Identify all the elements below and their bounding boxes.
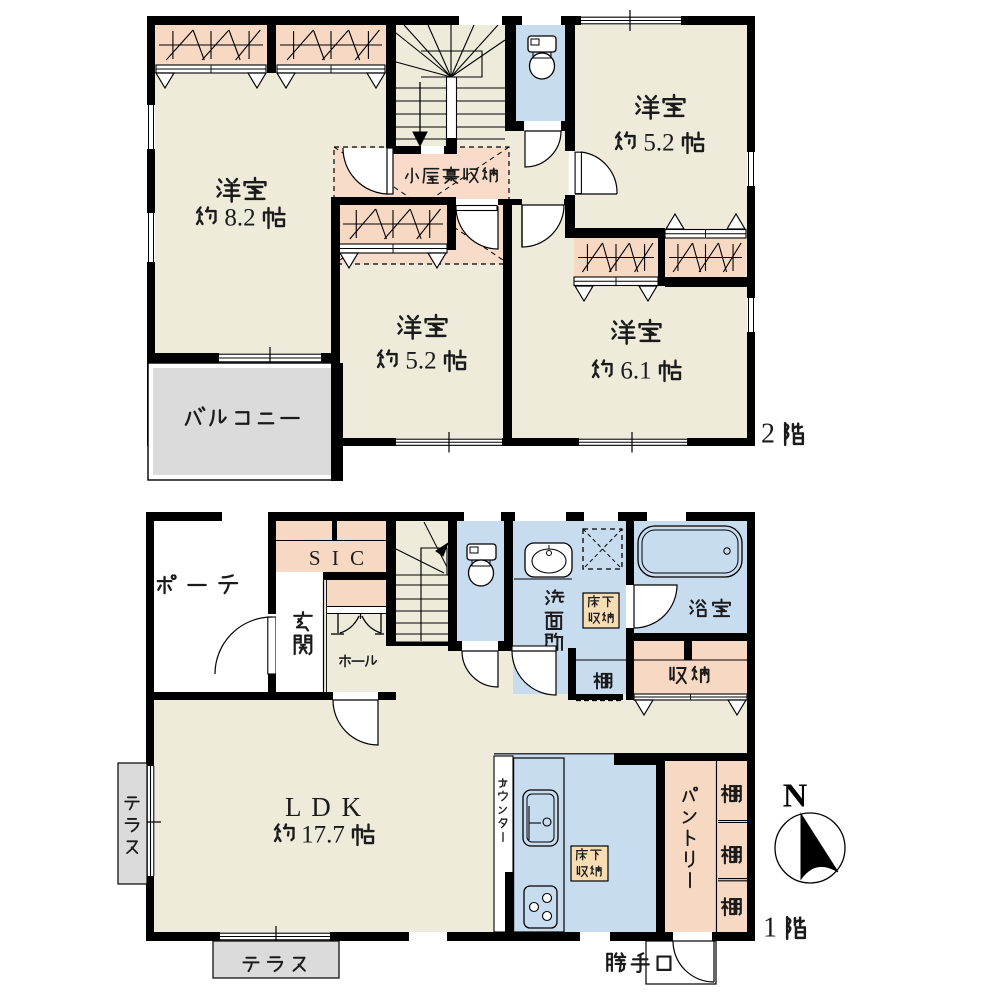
svg-text:6.1: 6.1 bbox=[620, 358, 651, 385]
svg-text:L D K: L D K bbox=[285, 792, 363, 822]
svg-text:1: 1 bbox=[763, 913, 777, 944]
svg-text:2: 2 bbox=[761, 419, 775, 450]
svg-text:5.2: 5.2 bbox=[643, 130, 674, 157]
svg-text:S I C: S I C bbox=[309, 546, 367, 570]
svg-text:8.2: 8.2 bbox=[224, 205, 255, 232]
svg-text:5.2: 5.2 bbox=[405, 348, 436, 375]
svg-text:17.7: 17.7 bbox=[301, 822, 345, 849]
svg-text:N: N bbox=[783, 778, 808, 815]
